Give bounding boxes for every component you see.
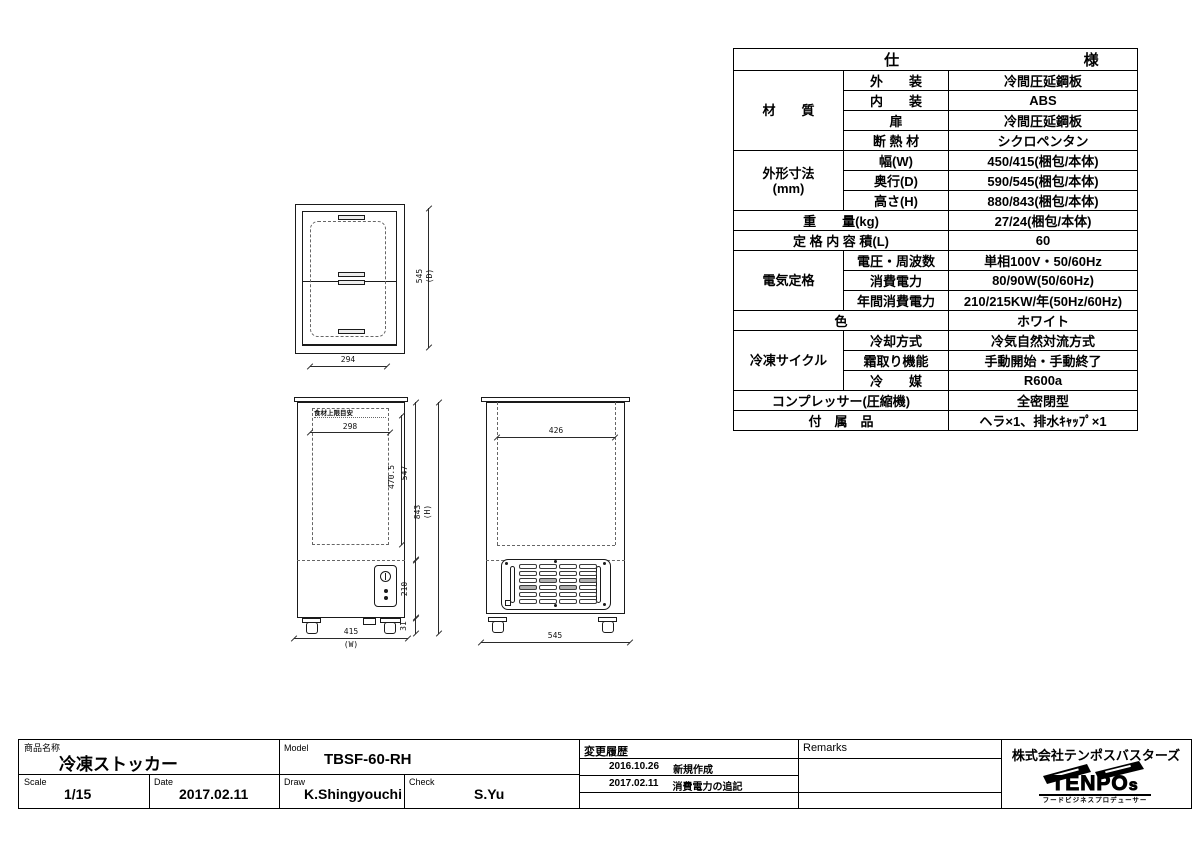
dim-line-415w bbox=[294, 638, 408, 639]
dim-label-547: 547 bbox=[400, 458, 412, 488]
spec-item-value: R600a bbox=[949, 371, 1138, 391]
dim-label-470-5: 470.5 bbox=[387, 460, 399, 494]
dim-label-843h: 843 (H) bbox=[413, 499, 435, 525]
louver-slot bbox=[539, 578, 557, 583]
spec-item-label: 霜取り機能 bbox=[844, 351, 949, 371]
dim-line-426 bbox=[497, 437, 615, 438]
top-view-drawing: 294 545 (D) bbox=[295, 204, 450, 379]
spec-group-label: 外形寸法 (mm) bbox=[734, 151, 844, 211]
spec-row: 電気定格電圧・周波数単相100V・50/60Hz bbox=[734, 251, 1138, 271]
dim-line-298 bbox=[310, 432, 390, 433]
dim-line-210 bbox=[415, 560, 416, 618]
louver-slot bbox=[559, 585, 577, 590]
dim-line-547 bbox=[415, 402, 416, 560]
spec-group-label: 材 質 bbox=[734, 71, 844, 151]
dim-line-31 bbox=[415, 618, 416, 634]
dim-label-545: 545 bbox=[540, 631, 570, 640]
dim-line-545 bbox=[481, 642, 630, 643]
spec-row: 付 属 品ヘラ×1、排水ｷｬｯﾌﾟ×1 bbox=[734, 411, 1138, 431]
spec-item-label: 高さ(H) bbox=[844, 191, 949, 211]
tenpos-logo: TENPOs フードビジネスプロデューサー bbox=[1037, 761, 1153, 807]
spec-item-value: 冷気自然対流方式 bbox=[949, 331, 1138, 351]
inner-dashed-bottom bbox=[497, 545, 615, 546]
remarks-label: Remarks bbox=[803, 743, 847, 753]
history-label: 変更履歴 bbox=[584, 743, 628, 759]
logo-wordmark: TENPOs bbox=[1037, 773, 1153, 796]
draw-value: K.Shingyouchi bbox=[304, 786, 402, 802]
louver-slot bbox=[519, 571, 537, 576]
spec-item-label: コンプレッサー(圧縮機) bbox=[734, 391, 949, 411]
spec-item-value: 冷間圧延鋼板 bbox=[949, 111, 1138, 131]
louver-slot bbox=[519, 592, 537, 597]
louver-slot bbox=[579, 592, 597, 597]
louver-slot bbox=[539, 571, 557, 576]
louver-slot bbox=[579, 571, 597, 576]
spec-item-value: 単相100V・50/60Hz bbox=[949, 251, 1138, 271]
history-row: 2016.10.26 新規作成 bbox=[609, 761, 713, 776]
hinge-mark bbox=[338, 329, 365, 334]
indicator-lamp bbox=[384, 589, 388, 593]
spec-item-value: 60 bbox=[949, 231, 1138, 251]
louver-slot bbox=[539, 585, 557, 590]
dim-label-294: 294 bbox=[333, 355, 363, 364]
dim-label-545d: 545 (D) bbox=[415, 263, 437, 289]
spec-item-value: 590/545(梱包/本体) bbox=[949, 171, 1138, 191]
spec-header-right: 様 bbox=[1047, 49, 1135, 70]
product-name-label: 商品名称 bbox=[24, 743, 60, 753]
spec-row: 定 格 内 容 積(L)60 bbox=[734, 231, 1138, 251]
caster bbox=[598, 617, 617, 632]
indicator-lamp bbox=[384, 596, 388, 600]
model-label: Model bbox=[284, 743, 309, 753]
dim-label-415-axis: (W) bbox=[338, 640, 364, 649]
spec-table-body: 仕 様 材 質外 装冷間圧延鋼板内 装ABS扉冷間圧延鋼板断 熱 材シクロペンタ… bbox=[734, 49, 1138, 431]
dim-line-294 bbox=[310, 366, 387, 367]
grille-louvers bbox=[519, 564, 595, 607]
louver-slot bbox=[579, 564, 597, 569]
spec-item-label: 年間消費電力 bbox=[844, 291, 949, 311]
spec-item-label: 冷却方式 bbox=[844, 331, 949, 351]
food-limit-note: 食材上限目安 bbox=[314, 410, 386, 418]
spec-row: 重 量(kg)27/24(梱包/本体) bbox=[734, 211, 1138, 231]
machine-compartment-divider bbox=[297, 560, 405, 561]
spec-table-header: 仕 様 bbox=[734, 49, 1138, 71]
louver-slot bbox=[519, 585, 537, 590]
louver-slot bbox=[559, 578, 577, 583]
drawing-sheet: 仕 様 材 質外 装冷間圧延鋼板内 装ABS扉冷間圧延鋼板断 熱 材シクロペンタ… bbox=[0, 0, 1200, 848]
dim-label-426: 426 bbox=[541, 426, 571, 435]
spec-item-label: 扉 bbox=[844, 111, 949, 131]
screw bbox=[505, 562, 508, 565]
grille-side-bar bbox=[510, 566, 515, 603]
spec-item-value: 210/215KW/年(50Hz/60Hz) bbox=[949, 291, 1138, 311]
louver-slot bbox=[559, 564, 577, 569]
spec-item-label: 断 熱 材 bbox=[844, 131, 949, 151]
vent-grille bbox=[501, 559, 611, 610]
louver-slot bbox=[539, 592, 557, 597]
spec-item-value: 880/843(梱包/本体) bbox=[949, 191, 1138, 211]
screw bbox=[554, 604, 557, 607]
louver-slot bbox=[579, 599, 597, 604]
screw bbox=[603, 562, 606, 565]
spec-header-left: 仕 bbox=[736, 49, 1047, 70]
date-label: Date bbox=[154, 777, 173, 787]
spec-row: 冷凍サイクル冷却方式冷気自然対流方式 bbox=[734, 331, 1138, 351]
inner-dashed-line bbox=[615, 402, 616, 545]
spec-item-value: 手動開始・手動終了 bbox=[949, 351, 1138, 371]
title-block: 商品名称 冷凍ストッカー Model TBSF-60-RH Scale 1/15… bbox=[18, 739, 1192, 809]
draw-label: Draw bbox=[284, 777, 305, 787]
hinge-mark bbox=[338, 272, 365, 277]
spec-item-value: 27/24(梱包/本体) bbox=[949, 211, 1138, 231]
spec-table: 仕 様 材 質外 装冷間圧延鋼板内 装ABS扉冷間圧延鋼板断 熱 材シクロペンタ… bbox=[733, 48, 1138, 431]
hinge-mark bbox=[338, 215, 365, 220]
grille-corner-detail bbox=[505, 600, 511, 606]
check-label: Check bbox=[409, 777, 435, 787]
spec-item-value: ホワイト bbox=[949, 311, 1138, 331]
drain-plug bbox=[363, 618, 376, 625]
check-value: S.Yu bbox=[474, 786, 504, 802]
spec-item-label: 色 bbox=[734, 311, 949, 331]
caster bbox=[488, 617, 507, 632]
louver-slot bbox=[559, 599, 577, 604]
louver-slot bbox=[539, 564, 557, 569]
spec-item-label: 定 格 内 容 積(L) bbox=[734, 231, 949, 251]
spec-group-label: 冷凍サイクル bbox=[734, 331, 844, 391]
spec-item-label: 冷 媒 bbox=[844, 371, 949, 391]
louver-slot bbox=[519, 599, 537, 604]
spec-group-label: 電気定格 bbox=[734, 251, 844, 311]
spec-item-value: 80/90W(50/60Hz) bbox=[949, 271, 1138, 291]
spec-row: 材 質外 装冷間圧延鋼板 bbox=[734, 71, 1138, 91]
spec-item-label: 外 装 bbox=[844, 71, 949, 91]
dim-label-298: 298 bbox=[320, 422, 380, 431]
spec-item-label: 電圧・周波数 bbox=[844, 251, 949, 271]
dim-label-31: 31 bbox=[399, 616, 409, 636]
spec-item-value: ABS bbox=[949, 91, 1138, 111]
spec-item-value: ヘラ×1、排水ｷｬｯﾌﾟ×1 bbox=[949, 411, 1138, 431]
lid-dashed-outline bbox=[310, 221, 386, 337]
louver-slot bbox=[559, 571, 577, 576]
lid-lip-line bbox=[303, 344, 397, 345]
spec-item-label: 消費電力 bbox=[844, 271, 949, 291]
caster bbox=[380, 618, 401, 633]
date-value: 2017.02.11 bbox=[179, 786, 248, 802]
louver-slot bbox=[519, 564, 537, 569]
scale-label: Scale bbox=[24, 777, 47, 787]
logo-subtitle: フードビジネスプロデューサー bbox=[1039, 794, 1151, 805]
dim-label-210: 210 bbox=[400, 574, 412, 604]
spec-item-value: 全密閉型 bbox=[949, 391, 1138, 411]
caster bbox=[302, 618, 321, 633]
knob-pointer bbox=[385, 573, 386, 580]
spec-row: 外形寸法 (mm)幅(W)450/415(梱包/本体) bbox=[734, 151, 1138, 171]
spec-item-value: 冷間圧延鋼板 bbox=[949, 71, 1138, 91]
spec-item-label: 付 属 品 bbox=[734, 411, 949, 431]
inner-dashed-line bbox=[497, 402, 498, 545]
spec-row: 色ホワイト bbox=[734, 311, 1138, 331]
dim-label-415: 415 bbox=[336, 627, 366, 636]
spec-item-value: シクロペンタン bbox=[949, 131, 1138, 151]
screw bbox=[554, 560, 557, 563]
hinge-mark bbox=[338, 280, 365, 285]
spec-item-label: 重 量(kg) bbox=[734, 211, 949, 231]
louver-slot bbox=[559, 592, 577, 597]
louver-slot bbox=[579, 578, 597, 583]
front-view-drawing: 食材上限目安 298 470.5 547 210 31 bbox=[294, 397, 464, 657]
control-panel bbox=[374, 565, 397, 607]
scale-value: 1/15 bbox=[64, 786, 91, 802]
spec-item-label: 内 装 bbox=[844, 91, 949, 111]
spec-item-value: 450/415(梱包/本体) bbox=[949, 151, 1138, 171]
model-value: TBSF-60-RH bbox=[324, 751, 412, 768]
screw bbox=[603, 603, 606, 606]
spec-row: コンプレッサー(圧縮機)全密閉型 bbox=[734, 391, 1138, 411]
product-name-value: 冷凍ストッカー bbox=[59, 750, 178, 775]
history-row: 2017.02.11 消費電力の追記 bbox=[609, 778, 743, 793]
spec-item-label: 奥行(D) bbox=[844, 171, 949, 191]
louver-slot bbox=[579, 585, 597, 590]
spec-item-label: 幅(W) bbox=[844, 151, 949, 171]
dim-line-843h bbox=[438, 402, 439, 634]
side-view-drawing: 426 545 bbox=[481, 397, 641, 657]
louver-slot bbox=[519, 578, 537, 583]
